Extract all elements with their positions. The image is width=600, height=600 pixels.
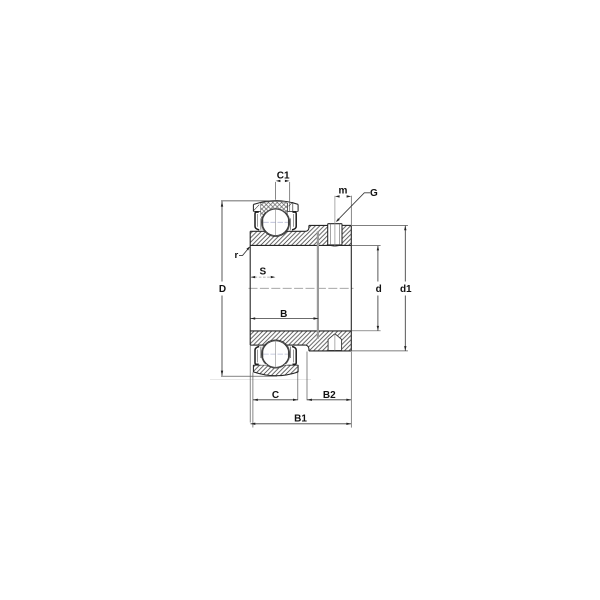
svg-text:C1: C1 [277,171,290,182]
svg-text:D: D [219,284,226,295]
svg-text:r: r [235,250,239,261]
svg-text:m: m [339,186,348,197]
svg-text:C: C [272,390,279,401]
svg-text:B2: B2 [323,390,336,401]
svg-text:S: S [259,267,266,278]
svg-text:d: d [376,284,382,295]
svg-text:B1: B1 [294,414,307,425]
svg-text:G: G [370,188,378,199]
svg-text:B: B [280,309,287,320]
svg-text:d1: d1 [400,284,412,295]
